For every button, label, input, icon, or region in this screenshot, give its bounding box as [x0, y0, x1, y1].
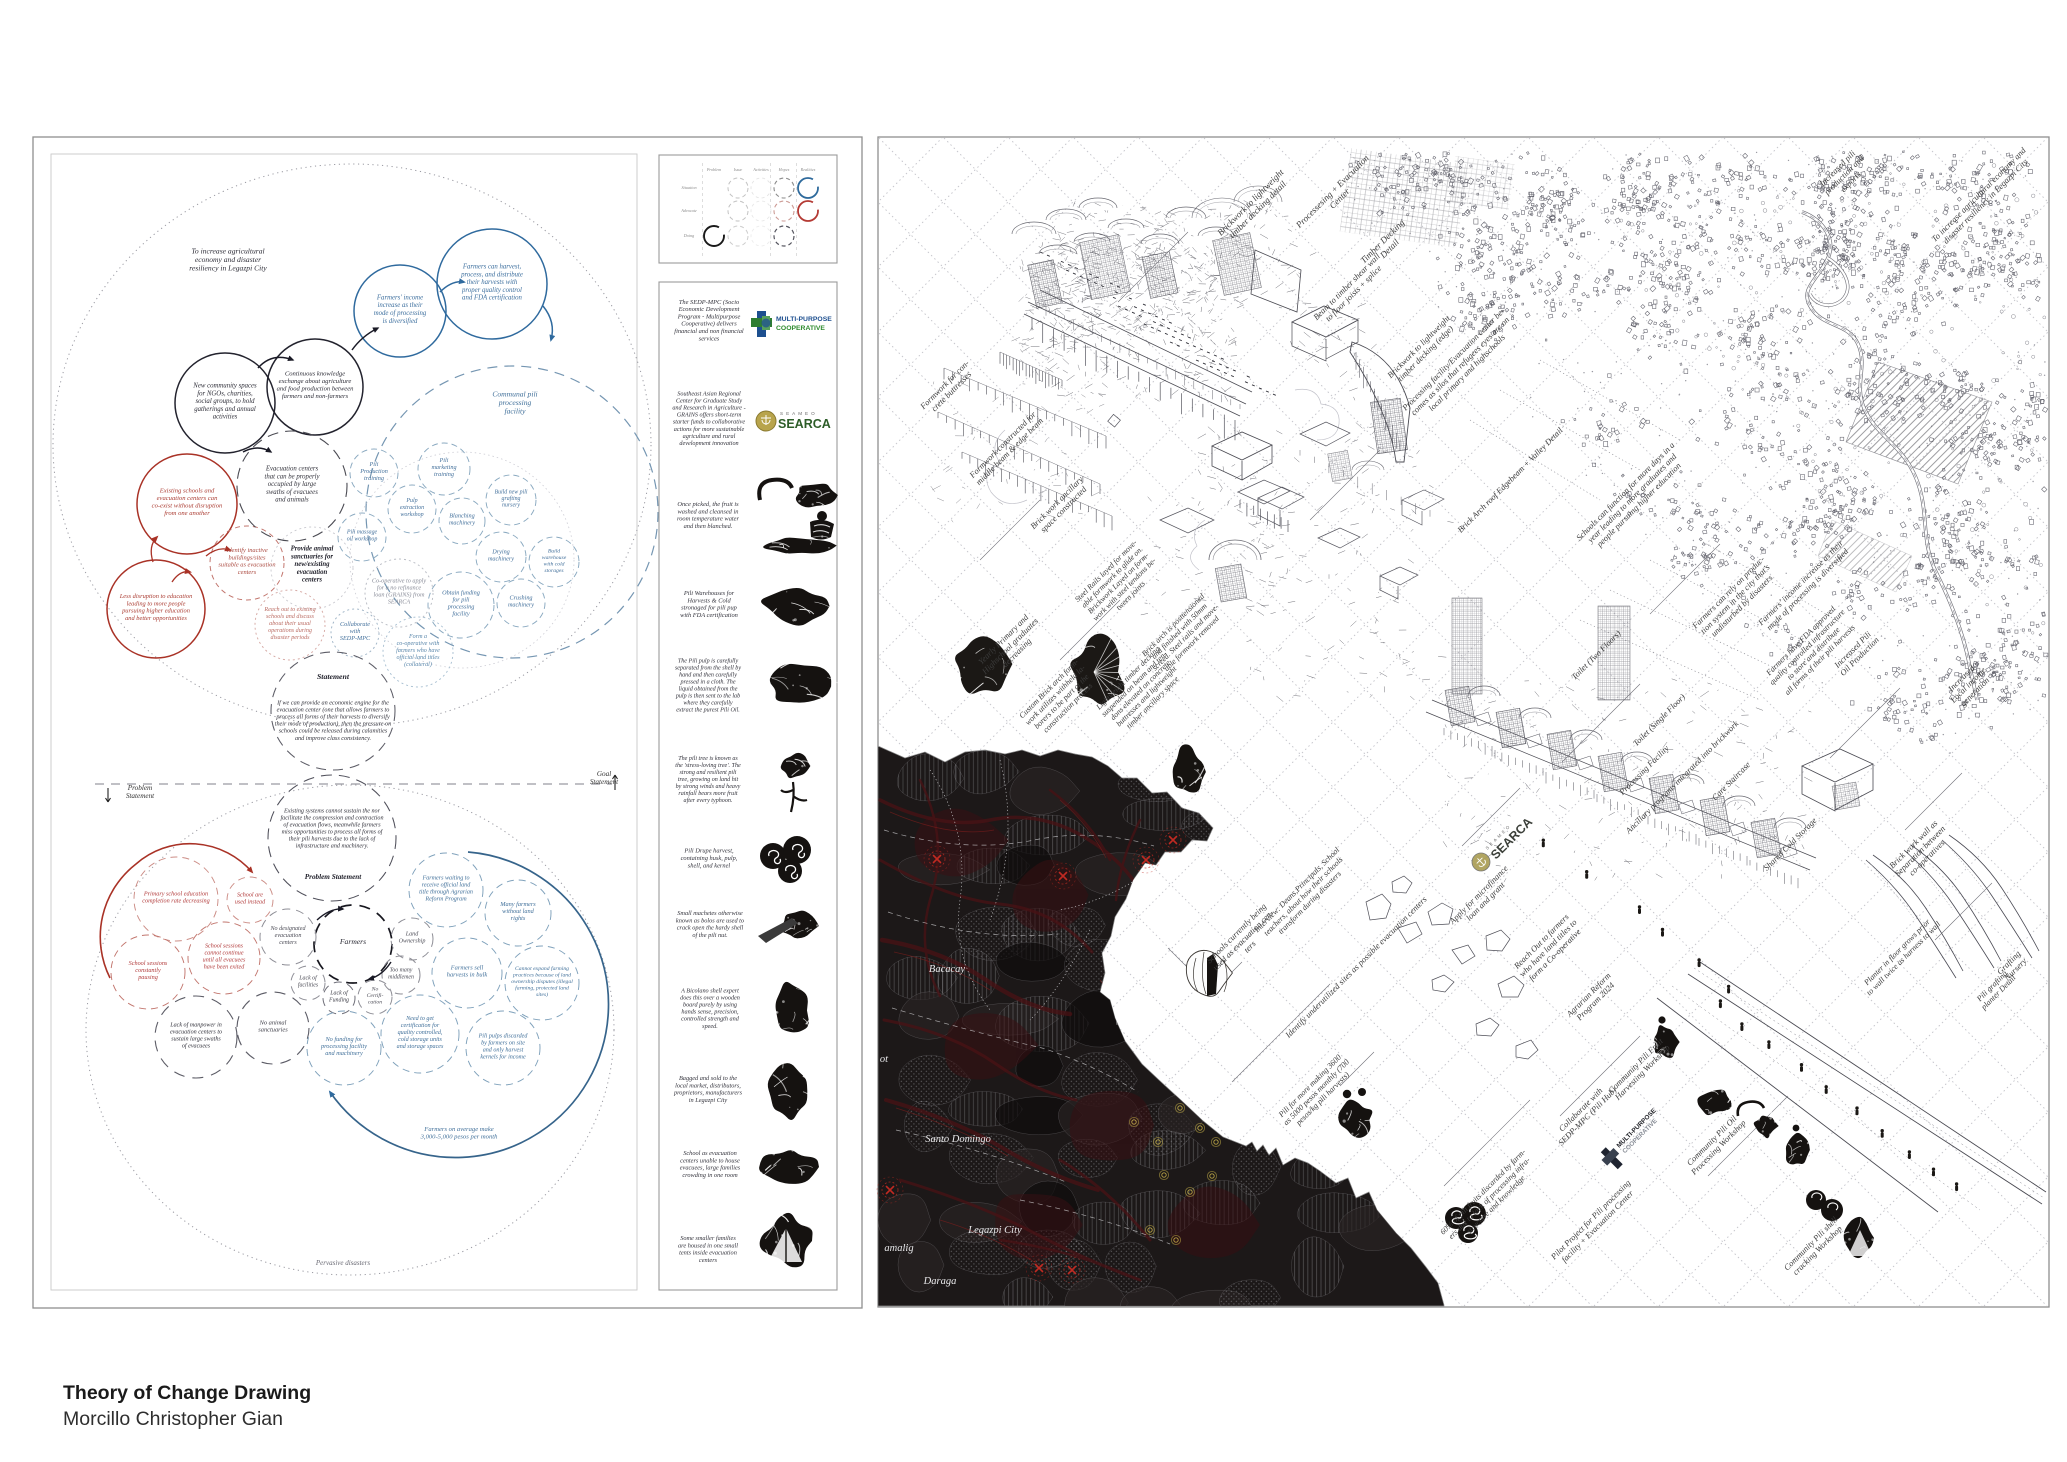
svg-text:Issue: Issue: [733, 167, 743, 172]
svg-text:ot: ot: [880, 1054, 889, 1065]
svg-text:Existing systems cannot sustai: Existing systems cannot sustain the norf…: [280, 809, 383, 850]
svg-text:Pili pulps discardedby farmers: Pili pulps discardedby farmers on sitean…: [478, 1034, 529, 1061]
svg-text:Theory of Change Drawing: Theory of Change Drawing: [63, 1382, 311, 1404]
svg-text:To increase agriculturaleconom: To increase agriculturaleconomy and disa…: [189, 246, 267, 272]
svg-text:Lack ofFunding: Lack ofFunding: [328, 990, 349, 1004]
svg-text:SEAMEO: SEAMEO: [780, 411, 818, 416]
svg-text:Too manymiddlemen: Too manymiddlemen: [388, 968, 414, 981]
svg-text:Pili massageoil workshop: Pili massageoil workshop: [346, 530, 378, 543]
svg-text:School as evacuationcenters un: School as evacuationcenters unable to ho…: [680, 1150, 741, 1179]
svg-text:Farmers on average make3,000-5: Farmers on average make3,000-5,000 pesos…: [420, 1126, 498, 1141]
svg-text:ProblemStatement: ProblemStatement: [126, 784, 155, 800]
svg-text:Once picked, the fruit iswashe: Once picked, the fruit iswashed and clea…: [677, 501, 740, 530]
svg-text:Santo Domingo: Santo Domingo: [925, 1134, 991, 1145]
svg-text:Reach out to existingschools a: Reach out to existingschools and discuss…: [263, 607, 315, 641]
svg-text:amalig: amalig: [884, 1243, 913, 1254]
svg-text:SEARCA: SEARCA: [778, 417, 831, 431]
svg-text:Less disruption to educationle: Less disruption to educationleading to m…: [119, 593, 193, 622]
svg-text:Advocate: Advocate: [680, 208, 697, 213]
svg-text:Pervasive disasters: Pervasive disasters: [315, 1259, 371, 1267]
svg-text:Continuous knowledgeexchange a: Continuous knowledgeexchange about agric…: [277, 371, 355, 401]
svg-text:Primary school educationcomple: Primary school educationcompletion rate …: [142, 891, 209, 905]
svg-text:Statement: Statement: [317, 672, 350, 681]
svg-text:Doing: Doing: [683, 233, 694, 238]
svg-text:Problem Statement: Problem Statement: [305, 873, 363, 881]
svg-text:School areused instead: School areused instead: [235, 893, 266, 906]
svg-text:MULTI-PURPOSE: MULTI-PURPOSE: [776, 316, 832, 323]
svg-text:Pili Warehouses forHarvests &: Pili Warehouses forHarvests & Coldstrona…: [680, 590, 738, 619]
svg-text:Farmers waiting toreceive offi: Farmers waiting toreceive official landt…: [419, 876, 473, 903]
svg-text:Daraga: Daraga: [923, 1276, 957, 1287]
svg-text:COOPERATIVE: COOPERATIVE: [776, 325, 825, 332]
svg-text:Pili Drupe harvest,containing: Pili Drupe harvest,containing husk, pulp…: [681, 848, 738, 870]
svg-text:Hopes: Hopes: [778, 167, 790, 172]
svg-text:Lack offacilities: Lack offacilities: [298, 975, 319, 989]
svg-text:Situation: Situation: [681, 185, 696, 190]
svg-text:Farmers can harvest,process, a: Farmers can harvest,process, and distrib…: [460, 264, 523, 302]
svg-text:Legazpi City: Legazpi City: [967, 1225, 1022, 1236]
svg-text:Realities: Realities: [800, 167, 816, 172]
svg-text:Problem: Problem: [706, 167, 721, 172]
svg-text:School sessionscannot continue: School sessionscannot continueuntil all …: [203, 944, 246, 971]
svg-text:Bacacay: Bacacay: [929, 964, 965, 975]
svg-text:Farmers sellharvests in bulk: Farmers sellharvests in bulk: [447, 964, 488, 978]
svg-text:Morcillo Christopher Gian: Morcillo Christopher Gian: [63, 1408, 283, 1430]
svg-text:The pili tree is known asthe ': The pili tree is known asthe 'stress-lov…: [675, 756, 741, 804]
svg-text:No animalsanctuaries: No animalsanctuaries: [258, 1019, 288, 1033]
svg-text:The Pili pulp is carefullysepa: The Pili pulp is carefullyseparated from…: [675, 658, 742, 714]
svg-text:No funding forprocessing facil: No funding forprocessing facilityand mac…: [320, 1036, 367, 1057]
svg-text:Activities: Activities: [752, 167, 769, 172]
svg-text:Farmers: Farmers: [339, 937, 366, 946]
svg-text:Southeast Asian RegionalCenter: Southeast Asian RegionalCenter for Gradu…: [672, 390, 745, 447]
svg-text:Blanchingmachinery: Blanchingmachinery: [449, 513, 475, 527]
svg-text:Crushingmachinery: Crushingmachinery: [508, 595, 534, 609]
